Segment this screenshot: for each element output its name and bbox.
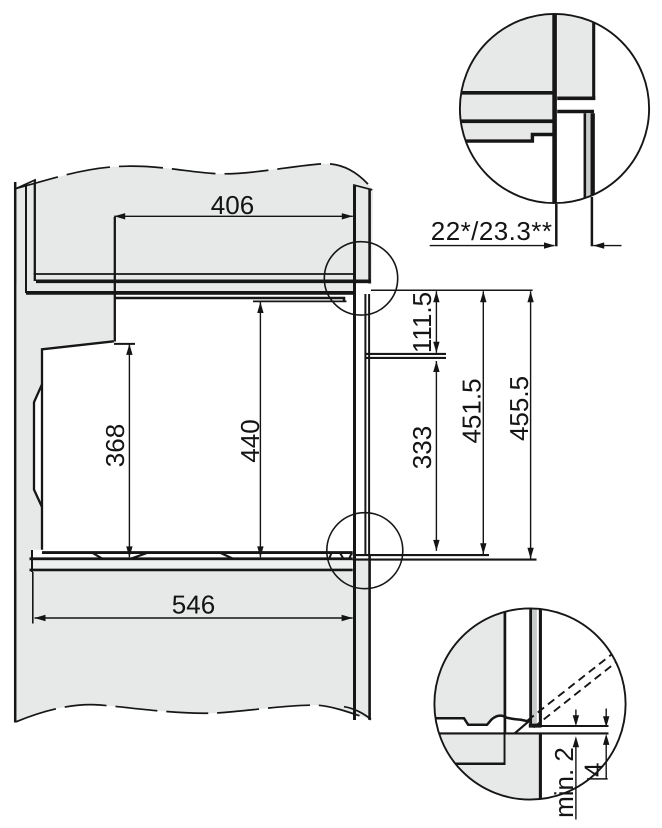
- svg-text:455.5: 455.5: [504, 376, 534, 441]
- svg-text:368: 368: [100, 424, 130, 467]
- svg-text:451.5: 451.5: [456, 378, 486, 443]
- svg-text:333: 333: [407, 426, 437, 469]
- svg-text:440: 440: [235, 419, 265, 462]
- svg-text:22*/23.3**: 22*/23.3**: [431, 216, 553, 246]
- svg-text:546: 546: [172, 590, 215, 620]
- svg-text:406: 406: [211, 190, 254, 220]
- svg-text:4: 4: [578, 763, 608, 777]
- svg-text:min. 2: min. 2: [549, 747, 579, 818]
- svg-text:111.5: 111.5: [407, 292, 437, 353]
